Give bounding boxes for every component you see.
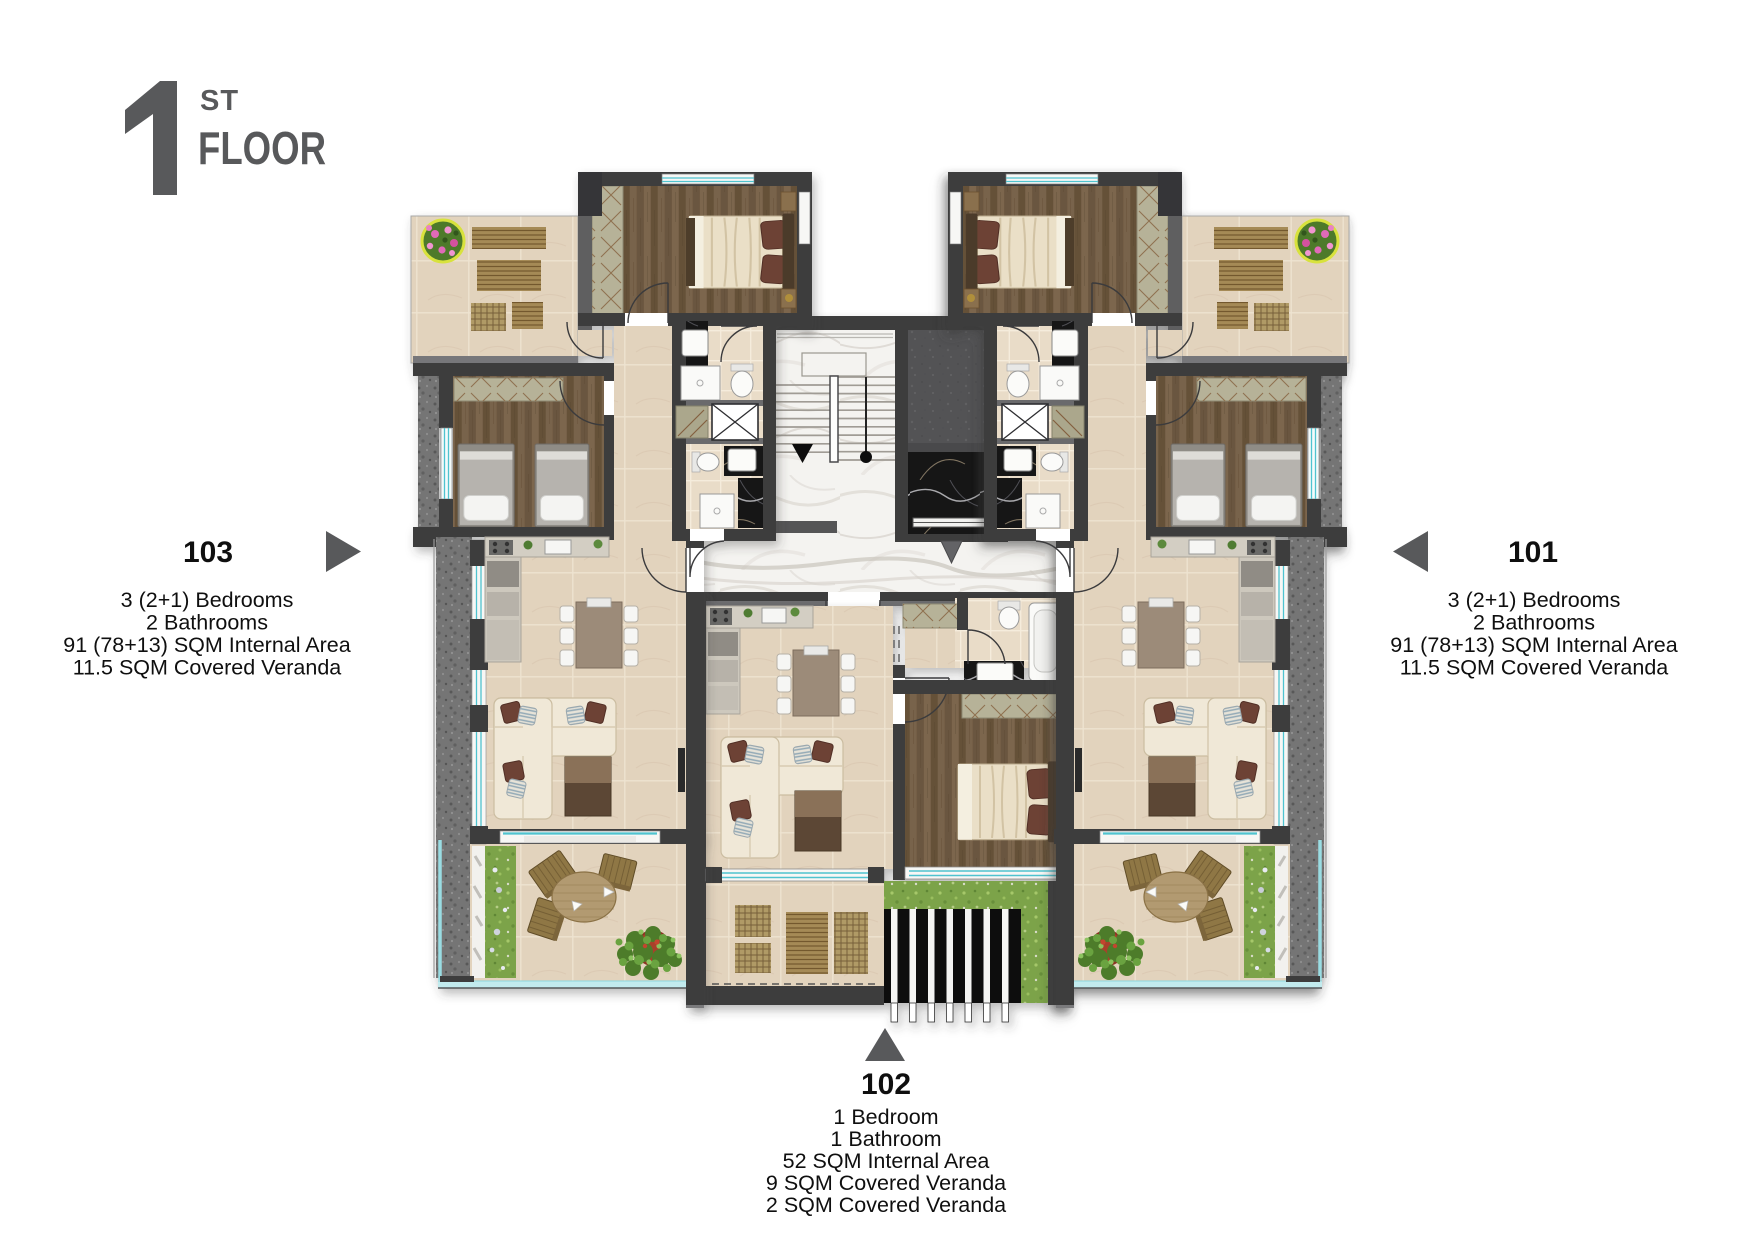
svg-text:91 (78+13) SQM Internal Area: 91 (78+13) SQM Internal Area	[63, 633, 350, 657]
svg-text:11.5 SQM Covered Veranda: 11.5 SQM Covered Veranda	[1400, 656, 1669, 680]
svg-text:11.5 SQM Covered Veranda: 11.5 SQM Covered Veranda	[73, 656, 342, 680]
svg-text:2 Bathrooms: 2 Bathrooms	[146, 611, 268, 635]
svg-text:91 (78+13) SQM Internal Area: 91 (78+13) SQM Internal Area	[1390, 633, 1677, 657]
svg-text:FLOOR: FLOOR	[198, 122, 326, 174]
svg-text:2 Bathrooms: 2 Bathrooms	[1473, 611, 1595, 635]
svg-text:1 Bedroom: 1 Bedroom	[833, 1105, 938, 1129]
svg-text:102: 102	[861, 1068, 911, 1101]
svg-text:2 SQM Covered Veranda: 2 SQM Covered Veranda	[766, 1193, 1006, 1217]
svg-text:3 (2+1) Bedrooms: 3 (2+1) Bedrooms	[1448, 588, 1621, 612]
svg-text:3 (2+1) Bedrooms: 3 (2+1) Bedrooms	[121, 588, 294, 612]
svg-text:9 SQM Covered Veranda: 9 SQM Covered Veranda	[766, 1171, 1006, 1195]
svg-text:1 Bathroom: 1 Bathroom	[830, 1127, 941, 1151]
svg-text:103: 103	[183, 536, 233, 569]
svg-text:101: 101	[1508, 536, 1558, 569]
svg-text:52 SQM Internal Area: 52 SQM Internal Area	[783, 1149, 990, 1173]
svg-text:ST: ST	[200, 85, 239, 117]
